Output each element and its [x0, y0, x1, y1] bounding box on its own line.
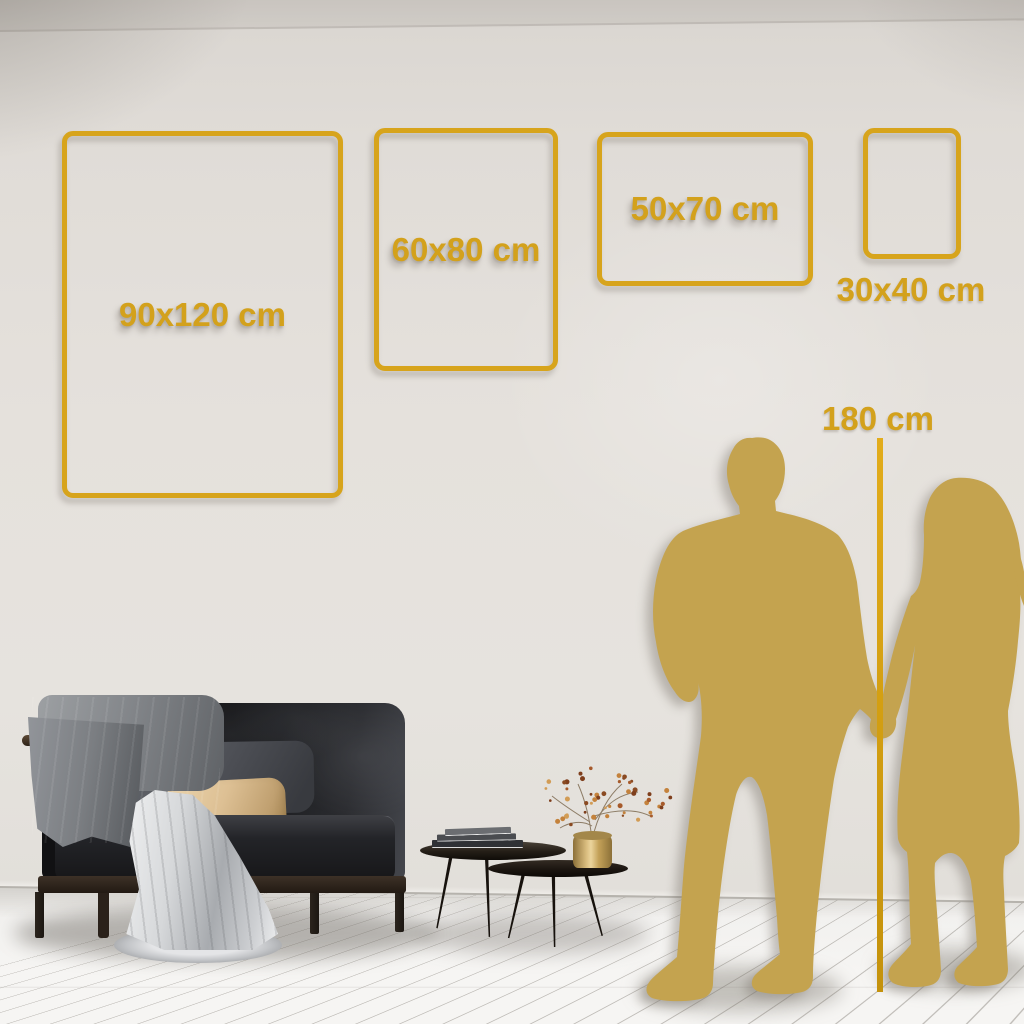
man-floor-shadow	[638, 966, 842, 1012]
size-guide-scene: 90x120 cm 60x80 cm 50x70 cm 30x40 cm 180…	[0, 0, 1024, 1024]
sofa	[22, 695, 417, 945]
size-label-60x80: 60x80 cm	[392, 231, 541, 269]
size-frame-90x120: 90x120 cm	[62, 131, 343, 498]
height-measure-line	[877, 438, 883, 992]
height-reference-label: 180 cm	[820, 400, 936, 438]
sofa-leg	[310, 892, 319, 934]
woman-floor-shadow	[878, 948, 1024, 990]
size-label-30x40: 30x40 cm	[833, 271, 989, 309]
brass-vase	[573, 835, 612, 868]
size-frame-60x80: 60x80 cm	[374, 128, 558, 371]
size-frame-30x40	[863, 128, 961, 259]
table-leg	[434, 855, 454, 929]
table-leg	[583, 873, 605, 936]
table-leg	[506, 873, 527, 939]
table-leg	[550, 875, 557, 947]
nesting-coffee-tables	[415, 815, 650, 950]
sofa-leg	[395, 892, 404, 932]
size-label-50x70: 50x70 cm	[631, 190, 780, 228]
size-frame-50x70: 50x70 cm	[597, 132, 813, 286]
size-label-90x120: 90x120 cm	[119, 296, 286, 334]
